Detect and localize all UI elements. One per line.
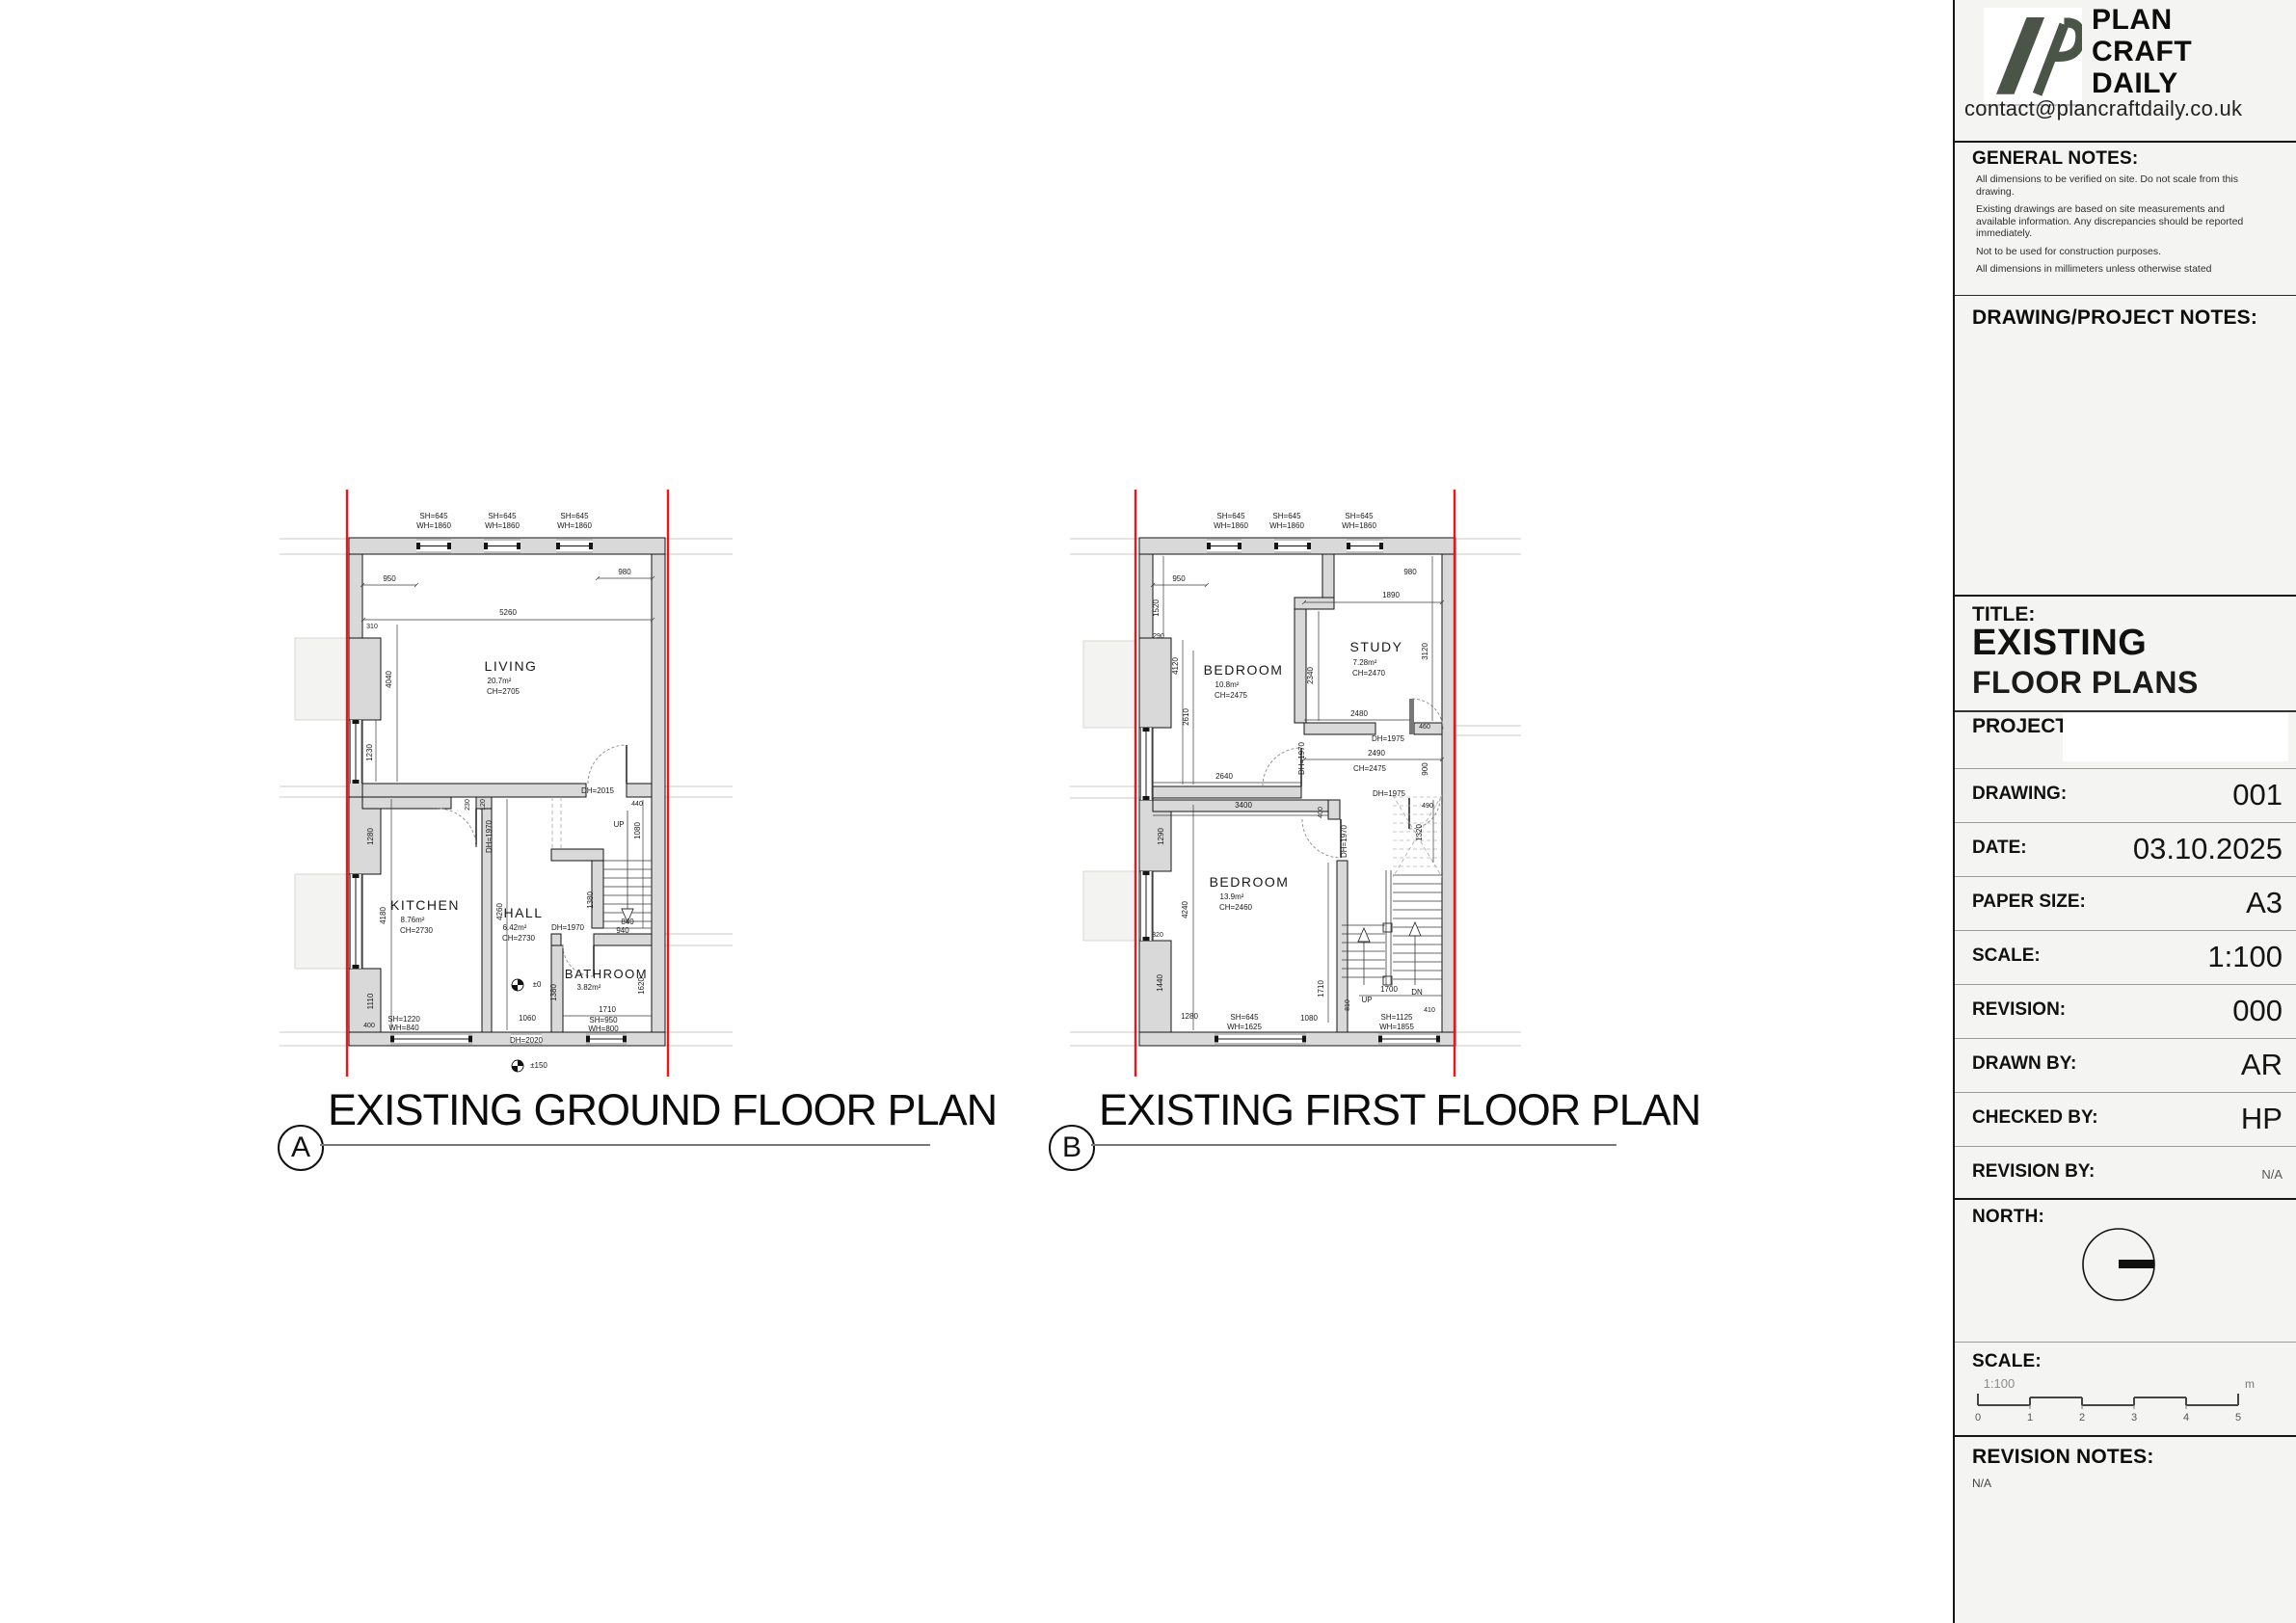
drawing-label: 0 (1975, 1412, 1981, 1423)
drawing-label: 1890 (1382, 591, 1400, 599)
field-value: 000 (2232, 994, 2283, 1028)
drawing-label: m (2245, 1377, 2255, 1391)
drawing-label: 1:100 (1984, 1376, 2016, 1391)
field-date: DATE: 03.10.2025 (1955, 822, 2296, 876)
drawing-label: WH=800 (588, 1024, 619, 1033)
window-left-bay-2 (1140, 871, 1152, 941)
drawing-label: 1520 (1152, 599, 1161, 617)
drawing-label: 940 (616, 926, 629, 935)
drawing-label: 980 (1403, 568, 1417, 576)
field-checked-by: CHECKED BY: HP (1955, 1092, 2296, 1146)
revision-notes-value: N/A (1972, 1477, 1991, 1490)
drawing-label: 1280 (1181, 1012, 1198, 1021)
drawing-label: CH=2475 (1215, 691, 1248, 700)
drawing-label: 320 (1152, 932, 1163, 939)
drawing-label: DH=1975 (1372, 734, 1405, 743)
drawing-label: SH=645 (1272, 512, 1301, 520)
field-label: DATE: (1972, 838, 2027, 859)
drawing-label: 1380 (586, 891, 595, 909)
drawing-label: SH=1125 (1381, 1013, 1414, 1022)
stair-up-arrow (1358, 928, 1370, 942)
plan-ref-circle-b: B (1049, 1125, 1095, 1171)
title-underline (320, 1144, 930, 1146)
contact-email: contact@plancraftdaily.co.uk (1964, 96, 2242, 121)
drawing-label: 20.7m² (488, 677, 512, 685)
plan-ref-circle-a: A (278, 1125, 324, 1171)
drawing-label: 7.28m² (1353, 658, 1377, 667)
field-revision: REVISION: 000 (1955, 984, 2296, 1038)
drawing-label: WH=1860 (416, 521, 451, 530)
drawing-label: SH=645 (488, 512, 517, 520)
drawing-label: WH=1860 (557, 521, 592, 530)
field-paper-size: PAPER SIZE: A3 (1955, 876, 2296, 930)
drawing-label: 3120 (1421, 643, 1429, 660)
title-block-panel: PLAN CRAFT DAILY contact@plancraftdaily.… (1953, 0, 2296, 1623)
drawing-label: BATHROOM (565, 967, 648, 981)
drawing-label: 4240 (1181, 901, 1189, 918)
drawing-label: 310 (366, 624, 378, 630)
drawing-label: WH=1860 (485, 521, 520, 530)
drawing-label: ±0 (533, 980, 542, 989)
drawing-label: 5 (2235, 1412, 2241, 1423)
level-marker-hall (512, 979, 523, 991)
drawing-label: CH=2470 (1352, 669, 1386, 678)
drawing-label: SH=645 (1230, 1013, 1259, 1022)
field-label: DRAWN BY: (1972, 1053, 2076, 1075)
field-label: PAPER SIZE: (1972, 891, 2086, 913)
sheet-title-line1: EXISTING (1972, 623, 2147, 664)
sheet-title-line2: FLOOR PLANS (1972, 665, 2199, 701)
scalebar-label: SCALE: (1972, 1351, 2042, 1372)
drawing-label: ±150 (530, 1061, 547, 1070)
drawing-label: 1290 (1157, 828, 1165, 845)
drawing-label: KITCHEN (390, 897, 460, 913)
window-bedroom2 (1215, 1033, 1306, 1045)
drawing-label: 2480 (1350, 709, 1368, 718)
stairs (1342, 795, 1442, 985)
stair-up-arrow (1409, 922, 1421, 936)
first-floor-plan: SH=645WH=1860SH=645WH=1860SH=645WH=18609… (1070, 487, 1533, 1084)
window-top-2 (484, 539, 521, 553)
window-left-bay-1 (350, 720, 361, 784)
window-top-3 (1347, 539, 1383, 553)
general-notes-list: All dimensions to be verified on site. D… (1976, 173, 2265, 281)
drawing-label: BEDROOM (1204, 662, 1284, 678)
drawing-label: 2610 (1182, 708, 1190, 726)
field-value: A3 (2246, 886, 2283, 920)
drawing-label: 1060 (519, 1014, 536, 1023)
general-note: All dimensions to be verified on site. D… (1976, 173, 2265, 198)
north-label: NORTH: (1972, 1207, 2044, 1228)
drawing-label: 810 (1345, 999, 1351, 1011)
window-top-1 (1207, 539, 1241, 553)
brand-name: PLAN CRAFT DAILY (2092, 4, 2192, 99)
drawing-label: 980 (618, 568, 631, 576)
drawing-label: 460 (1419, 724, 1430, 731)
first-plan-title: EXISTING FIRST FLOOR PLAN (1099, 1085, 1700, 1135)
level-marker-external (512, 1060, 523, 1072)
drawing-label: 1080 (1300, 1014, 1318, 1023)
plan-ref-letter: A (291, 1131, 310, 1164)
drawing-label: UP (1361, 996, 1372, 1004)
plancraftdaily-logo-icon (1984, 8, 2082, 102)
drawing-label: 950 (383, 574, 396, 583)
window-top-1 (416, 539, 451, 553)
drawing-label: 1380 (549, 984, 558, 1001)
drawing-sheet: { "branding": { "line1": "PLAN", "line2"… (0, 0, 2296, 1623)
drawing-label: DH=1970 (1297, 741, 1306, 775)
drawing-label: CH=2730 (400, 926, 434, 935)
study-door-leaf (1409, 699, 1414, 734)
drawing-label: WH=1860 (1214, 521, 1248, 530)
window-left-bay-2 (350, 874, 361, 969)
drawing-label: 1710 (599, 1005, 616, 1014)
plan-ref-letter: B (1062, 1131, 1081, 1164)
field-value: AR (2241, 1048, 2283, 1082)
drawing-label: 4040 (385, 671, 393, 688)
drawing-label: SH=950 (589, 1016, 618, 1024)
drawing-label: 290 (1153, 633, 1164, 640)
field-scale: SCALE: 1:100 (1955, 930, 2296, 984)
drawing-label: 1 (2027, 1412, 2033, 1423)
drawing-label: 1280 (366, 828, 375, 845)
drawing-label: 950 (1172, 574, 1186, 583)
field-value: 03.10.2025 (2133, 832, 2283, 866)
drawing-label: 400 (1318, 807, 1324, 818)
window-top-3 (556, 539, 593, 553)
field-label: REVISION: (1972, 999, 2066, 1021)
drawing-label: 1110 (366, 993, 375, 1009)
drawing-label: DH=1970 (485, 819, 494, 853)
drawing-label: STUDY (1350, 639, 1403, 654)
drawing-label: CH=2705 (487, 687, 521, 696)
drawing-label: 2340 (1306, 667, 1315, 684)
field-value: 1:100 (2207, 940, 2283, 974)
drawing-label: SH=645 (560, 512, 589, 520)
drawing-label: 1320 (1415, 824, 1424, 841)
drawing-label: 2640 (1215, 772, 1233, 781)
field-label: CHECKED BY: (1972, 1107, 2098, 1129)
drawing-label: 4120 (1171, 657, 1180, 675)
drawing-label: DH=1975 (1373, 789, 1406, 798)
drawing-label: DH=1970 (551, 923, 585, 932)
window-top-2 (1274, 539, 1311, 553)
drawing-label: WH=1855 (1379, 1023, 1414, 1031)
drawing-label: 400 (363, 1023, 375, 1029)
drawing-label: 1230 (365, 744, 374, 761)
field-label: REVISION BY: (1972, 1161, 2095, 1183)
drawing-label: HALL (503, 905, 543, 920)
drawing-label: 120 (480, 799, 487, 811)
window-kitchen (390, 1033, 472, 1045)
drawing-label: DN (1411, 988, 1423, 997)
drawing-label: 1710 (1317, 980, 1325, 998)
scale-bar: 1:100m012345 (1968, 1376, 2267, 1426)
drawing-label: UP (613, 820, 624, 829)
drawing-label: WH=1625 (1227, 1023, 1262, 1031)
drawing-label: 4180 (379, 907, 387, 924)
drawing-label: 5260 (499, 608, 517, 617)
field-value: HP (2241, 1102, 2283, 1136)
drawing-label: 8.76m² (401, 916, 425, 924)
drawing-label: 1700 (1380, 985, 1398, 994)
field-label: DRAWING: (1972, 784, 2067, 805)
drawing-label: 10.8m² (1215, 680, 1240, 689)
revision-notes-heading: REVISION NOTES: (1972, 1446, 2154, 1469)
walls (1139, 538, 1455, 1046)
field-label: SCALE: (1972, 945, 2041, 967)
drawing-label: 3 (2131, 1412, 2137, 1423)
ground-plan-title: EXISTING GROUND FLOOR PLAN (328, 1085, 997, 1135)
field-drawing: DRAWING: 001 (1955, 768, 2296, 822)
drawing-label: CH=2460 (1219, 903, 1253, 912)
drawing-label: SH=645 (1216, 512, 1245, 520)
drawing-label: WH=1860 (1269, 521, 1304, 530)
drawing-label: 900 (1421, 762, 1429, 776)
north-arrow-icon (2069, 1216, 2169, 1317)
ground-floor-plan: SH=645WH=1860SH=645WH=1860SH=645WH=18609… (280, 487, 742, 1084)
title-underline (1091, 1144, 1616, 1146)
drawing-label: 3400 (1235, 801, 1252, 810)
drawing-label: 1080 (633, 822, 642, 839)
field-value: 001 (2232, 778, 2283, 812)
drawing-label: 2 (2079, 1412, 2085, 1423)
logo-box (1984, 8, 2082, 106)
drawing-label: 2490 (1368, 749, 1385, 758)
drawing-label: 13.9m² (1220, 892, 1244, 901)
general-note: All dimensions in millimeters unless oth… (1976, 263, 2265, 276)
general-notes-heading: GENERAL NOTES: (1972, 148, 2138, 170)
general-note: Existing drawings are based on site meas… (1976, 203, 2265, 240)
drawing-label: WH=840 (388, 1024, 419, 1032)
drawing-label: WH=1860 (1342, 521, 1376, 530)
drawing-label: SH=645 (1345, 512, 1374, 520)
drawing-label: LIVING (485, 658, 538, 674)
drawing-label: 4 (2183, 1412, 2189, 1423)
field-revision-by: REVISION BY: N/A (1955, 1146, 2296, 1200)
project-address-value (2063, 713, 2288, 761)
drawing-label: 1440 (1156, 974, 1164, 992)
drawing-label: SH=645 (419, 512, 448, 520)
drawing-label: 6.42m² (503, 923, 527, 932)
window-bathroom (586, 1033, 627, 1045)
project-notes-heading: DRAWING/PROJECT NOTES: (1972, 306, 2257, 330)
field-value: N/A (2261, 1167, 2283, 1182)
drawing-label: BEDROOM (1210, 874, 1290, 890)
drawing-label: 840 (621, 918, 634, 926)
general-note: Not to be used for construction purposes… (1976, 246, 2265, 258)
drawing-label: 230 (465, 799, 471, 811)
drawing-label: CH=2475 (1353, 764, 1387, 773)
drawing-label: SH=1220 (387, 1015, 420, 1024)
field-drawn-by: DRAWN BY: AR (1955, 1038, 2296, 1092)
drawing-label: 440 (631, 801, 643, 808)
window-landing (1378, 1033, 1440, 1045)
drawing-label: CH=2730 (502, 934, 536, 943)
drawing-label: 410 (1424, 1007, 1435, 1014)
window-left-bay-1 (1140, 728, 1152, 800)
drawing-label: DH=1970 (1340, 824, 1348, 858)
drawing-label: DH=2020 (510, 1036, 544, 1045)
drawing-label: DH=2015 (581, 786, 615, 795)
drawing-label: 3.82m² (577, 983, 601, 992)
drawing-label: 490 (1422, 803, 1433, 810)
drawing-label: 1620 (637, 977, 646, 995)
